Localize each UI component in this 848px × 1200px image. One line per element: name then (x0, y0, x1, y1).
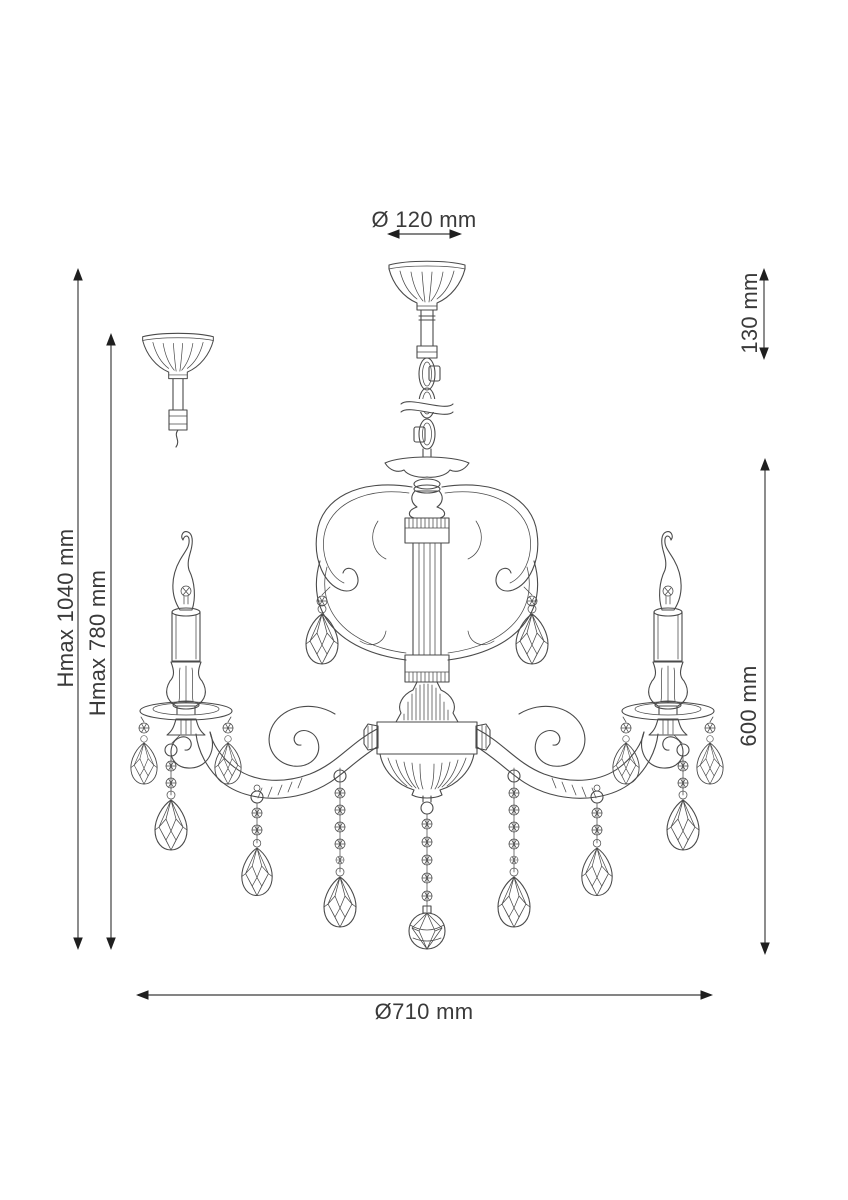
dimension-fixture-diameter-label: Ø710 mm (375, 999, 474, 1025)
center-pendant-strand (421, 796, 433, 913)
right-arm-group (442, 485, 723, 927)
top-plate (385, 457, 469, 489)
suspension-chain (400, 310, 454, 457)
dimension-suspension-height-label: 130 mm (737, 272, 763, 353)
dimension-max-height-label: Hmax 1040 mm (53, 529, 79, 688)
dimension-mid-height-label: Hmax 780 mm (85, 570, 111, 716)
mounting-detail (143, 333, 214, 447)
center-column (377, 485, 477, 798)
left-arm-group (131, 485, 412, 927)
ceiling-canopy (389, 261, 465, 310)
technical-drawing-page: Ø 120 mm 130 mm Hmax 1040 mm Hmax 780 mm… (0, 0, 848, 1200)
dimension-body-height-label: 600 mm (736, 665, 762, 746)
dimension-canopy-diameter-label: Ø 120 mm (371, 207, 476, 233)
bottom-crystal-ball (409, 913, 445, 949)
